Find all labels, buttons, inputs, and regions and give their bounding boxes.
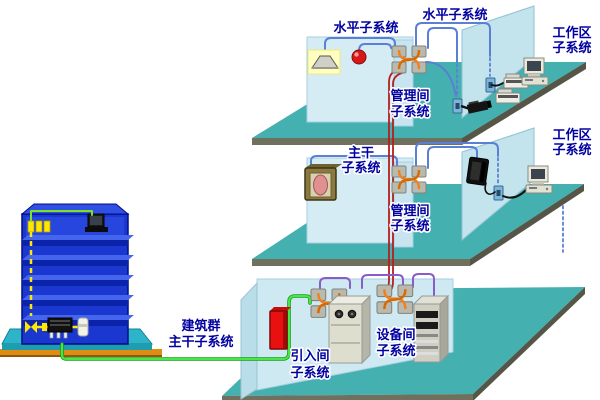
label-workarea-subsystem-2-line1: 工作区 [552, 127, 591, 143]
label-campus-backbone-line1: 建筑群 [181, 318, 220, 334]
server-rack-icon [414, 296, 448, 362]
label-workarea-subsystem-2-line2: 子系统 [552, 142, 591, 158]
pbx-cabinet-icon [329, 296, 370, 363]
desktop-computer-icon-middle [526, 166, 552, 193]
network-outlet-icon-c [494, 186, 503, 200]
cabling-structure-diagram: 水平子系统 水平子系统 工作区 子系统 工作区 子系统 管理间 子系统 管理间 … [0, 0, 600, 400]
label-equipment-subsystem-line1: 设备间 [376, 327, 415, 343]
middle-floor-slab-front-edge [252, 259, 470, 266]
horizontal-arc-inner [428, 28, 457, 62]
label-workarea-subsystem-1-line1: 工作区 [552, 25, 591, 41]
building-top-floor-equipment-icon [28, 221, 50, 232]
office-building-icon [0, 204, 162, 357]
label-backbone-subsystem-line2: 子系统 [341, 160, 380, 176]
label-workarea-subsystem-1-line2: 子系统 [552, 40, 591, 56]
label-equipment-subsystem-line2: 子系统 [376, 343, 415, 359]
bottom-floor-side-wall [241, 283, 257, 399]
label-entrance-subsystem-line2: 子系统 [290, 365, 329, 381]
building-roof [22, 204, 128, 214]
wall-phone-icon [466, 157, 488, 185]
ceiling-lamp-icon [308, 50, 340, 74]
wall-speaker-icon [305, 164, 342, 200]
ground-shadow [0, 355, 162, 357]
building-base-front [2, 344, 152, 350]
label-management-subsystem-1-line2: 子系统 [390, 104, 429, 120]
label-management-subsystem-2-line2: 子系统 [390, 218, 429, 234]
label-backbone-subsystem-line1: 主干 [348, 145, 374, 161]
desktop-computer-icon-top [522, 58, 548, 85]
network-outlet-icon-a [453, 99, 462, 113]
middle-floor-structure [252, 128, 584, 266]
label-entrance-subsystem-line1: 引入间 [290, 348, 329, 364]
label-horizontal-subsystem-1: 水平子系统 [333, 20, 398, 36]
label-management-subsystem-2-line1: 管理间 [390, 203, 429, 219]
label-campus-backbone-line2: 主干子系统 [168, 334, 233, 350]
cabling-diagram-stage: 水平子系统 水平子系统 工作区 子系统 工作区 子系统 管理间 子系统 管理间 … [0, 0, 600, 400]
label-management-subsystem-1-line1: 管理间 [390, 88, 429, 104]
label-horizontal-subsystem-2: 水平子系统 [422, 7, 487, 23]
fire-alarm-bell-icon [352, 50, 366, 64]
